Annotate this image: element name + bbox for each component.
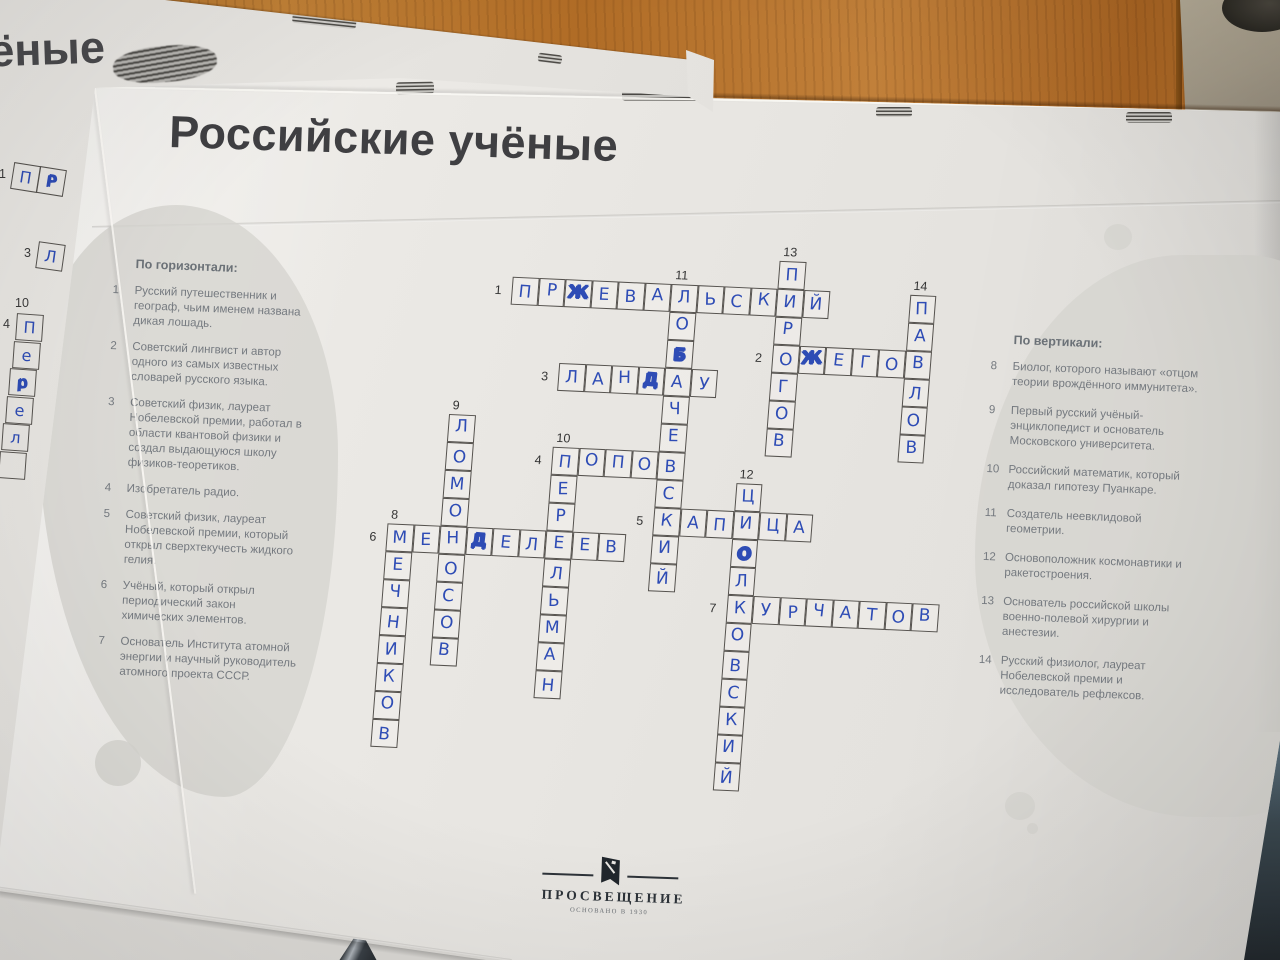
grid-cell-r9c13: И [732,511,761,540]
grid-cell-r2c19: А [906,323,935,352]
handwritten-letter: В [918,606,931,626]
across-clues-block: По горизонтали: 1Русский путешественник … [95,256,320,698]
grid-cell-r6c19: В [897,434,926,463]
grid-cell-r9c14: Ц [758,512,787,541]
page-title: Российские учёные [168,106,619,172]
clue-number: 13 [978,594,1004,640]
handwritten-letter: О [730,625,745,645]
grid-cell-r12c19: О [884,602,913,631]
grid-cell-r10c1: Е [412,525,441,554]
handwritten-letter: Ь [704,290,716,310]
handwritten-letter: Й [719,768,733,789]
grid-cell-r9c10: К [652,507,681,536]
grid-cell-r7c7: О [577,448,606,477]
back-grid-number: 10 [15,296,29,310]
grid-cell-r10c6: Е [544,531,573,560]
clue-text: Российский математик, который доказал ги… [1008,463,1205,501]
grid-cell-r4c10: А [663,368,692,397]
grid-cell-r4c8: Н [610,365,639,394]
grid-number-13: 13 [783,245,798,260]
handwritten-letter: Е [552,533,564,553]
handwritten-letter: К [659,511,673,532]
handwritten-letter: И [658,538,671,558]
handwritten-letter: М [449,474,465,495]
back-grid-cell: П [15,313,44,342]
handwritten-letter: Г [859,352,871,373]
grid-cell-r10c5: Л [518,529,547,558]
handwritten-letter: Р [787,603,798,623]
grid-cell-r1c13: К [749,288,778,317]
grid-cell-r3c19: В [903,351,932,380]
handwritten-letter: Р [781,319,794,340]
handwritten-letter: Ц [765,516,780,536]
grid-cell-r9c6: Р [546,503,575,532]
grid-cell-r6c10: Е [659,424,688,453]
grid-cell-r7c10: В [657,452,686,481]
grid-cell-r5c10: Ч [661,396,690,425]
handwritten-letter: П [557,452,572,473]
handwritten-letter: Е [420,530,431,550]
handwritten-letter: П [23,318,36,338]
handwritten-letter: Е [392,555,404,575]
grid-cell-r6c2: Л [447,414,476,443]
clue-item: 9Первый русский учёный-энциклопедист и о… [985,403,1237,458]
grid-cell-r11c6: Л [542,558,571,587]
handwritten-letter: Н [618,368,631,388]
publisher-name: ПРОСВЕЩЕНИЕ [541,887,677,908]
grid-cell-r10c3: Д [465,527,494,556]
grid-cell-r12c20: В [911,603,940,632]
clue-item: 11Создатель неевклидовой геометрии. [982,506,1233,546]
handwritten-letter: е [20,345,31,365]
grid-cell-r12c15: Р [778,597,807,626]
back-grid-number: 1 [0,167,6,181]
handwritten-letter: Е [832,350,845,371]
grid-cell-r8c10: С [654,479,683,508]
grid-cell-r3c18: О [877,349,906,378]
handwritten-letter: Н [540,675,555,696]
grid-cell-r9c2: О [440,498,469,527]
handwritten-letter: Е [667,426,679,446]
across-clue-list: 1Русский путешественник и географ, чьим … [95,283,319,687]
grid-cell-r1c9: А [643,283,672,312]
grid-cell-r13c6: М [538,614,567,643]
handwritten-letter: О [884,355,899,376]
handwritten-letter: О [674,314,689,334]
grid-cell-r1c8: В [616,282,645,311]
handwritten-letter: А [670,372,684,393]
clue-number: 10 [984,462,1009,493]
clue-item: 6Учёный, который открыл периодический за… [97,578,307,631]
handwritten-letter: л [10,428,22,448]
grid-cell-r14c2: В [430,637,459,666]
handwritten-letter: И [384,640,397,660]
clue-item: 13Основатель российской школы военно-пол… [978,594,1230,649]
down-clues-block: По вертикали: 8Биолог, которого называют… [975,332,1240,722]
handwritten-letter: О [447,501,462,522]
handwritten-letter: С [662,484,676,505]
clue-item: 5Советский физик, лауреат Нобелевской пр… [100,507,310,575]
grid-number-9: 9 [452,398,460,412]
grid-cell-r4c9: Д [637,367,666,396]
grid-number-14: 14 [913,279,928,294]
handwritten-letter: Й [655,569,669,589]
handwritten-letter: О [637,455,652,476]
grid-cell-r1c4: П [511,277,540,306]
clue-item: 1Русский путешественник и географ, чьим … [109,283,319,336]
grid-cell-r11c0: Е [383,551,412,580]
clue-item: 12Основоположник космонавтики и ракетост… [980,550,1231,590]
handwritten-letter: Ц [741,486,755,506]
grid-cell-r4c7: А [584,364,613,393]
handwritten-letter: Л [565,367,579,387]
grid-cell-r10c7: Е [571,532,600,561]
handwritten-letter: Е [579,535,591,555]
logo-rule-right [627,876,678,879]
grid-cell-r7c8: П [604,449,633,478]
decorative-dot [1104,224,1132,250]
clue-text: Советский физик, лауреат Нобелевской пре… [127,396,308,478]
grid-cell-r17c0: В [370,719,399,748]
clue-number: 9 [985,403,1011,449]
handwritten-letter: К [725,710,738,730]
open-book-icon [598,856,623,887]
grid-cell-r9c15: А [785,513,814,542]
clue-text: Создатель неевклидовой геометрии. [1006,507,1203,545]
toner-smudge [876,107,912,117]
clue-number: 12 [980,550,1005,581]
handwritten-letter: Ж [801,348,822,368]
grid-cell-r17c13: И [714,734,743,763]
handwritten-letter: У [760,601,771,621]
back-grid-cell: л [1,423,30,452]
grid-cell-r9c12: П [705,510,734,539]
grid-cell-r10c10: И [650,535,679,564]
handwritten-letter: О [443,559,457,579]
handwritten-letter: Е [598,285,610,305]
handwritten-letter: К [756,290,770,311]
grid-cell-r3c10: Б [665,340,694,369]
handwritten-letter: С [726,683,740,704]
handwritten-letter: К [382,666,395,686]
clue-number: 11 [982,506,1007,537]
grid-cell-r14c6: А [536,642,565,671]
handwritten-letter: О [774,404,789,425]
grid-cell-r12c13: К [725,595,754,624]
grid-cell-r13c2: О [432,610,461,639]
handwritten-letter: Л [908,384,923,405]
handwritten-letter: П [785,265,799,285]
grid-cell-r4c6: Л [557,363,586,392]
grid-cell-r8c6: Е [548,475,577,504]
clue-item: 14Русский физиолог, лауреат Нобелевской … [975,653,1227,708]
grid-cell-r1c7: Е [590,280,619,309]
clue-item: 10Российский математик, который доказал … [984,462,1235,502]
down-clue-list: 8Биолог, которого называют «отцом теории… [975,359,1238,708]
handwritten-letter: Л [525,535,540,556]
grid-cell-r7c6: П [551,447,580,476]
handwritten-letter: О [778,350,792,370]
grid-cell-r1c11: Ь [696,285,725,314]
grid-cell-r12c6: Ь [540,586,569,615]
grid-cell-r1c10: Л [669,284,698,313]
handwritten-letter: С [442,586,455,606]
grid-number-3: 3 [541,369,549,383]
back-grid-number: 3 [24,246,31,260]
grid-cell-r1c19: П [908,295,937,324]
handwritten-letter: А [792,518,805,538]
grid-cell-r3c15: Ж [797,346,826,375]
photo-of-crossword-worksheet: учёные 1ПР3Л104Перел Российские учёные П… [0,0,1280,960]
grid-cell-r3c17: Г [850,348,879,377]
clue-item: 7Основатель Института атомной энергии и … [95,634,305,687]
clue-text: Изобретатель радио. [126,482,304,504]
grid-cell-r10c0: М [385,523,414,552]
handwritten-letter: В [624,287,637,307]
grid-cell-r5c14: О [767,400,796,429]
grid-cell-r12c0: Ч [381,579,410,608]
grid-cell-r14c13: В [721,651,750,680]
handwritten-letter: Р [45,171,58,191]
handwritten-letter: Л [455,417,469,437]
decorative-dot [1027,823,1038,834]
publisher-logo: ПРОСВЕЩЕНИЕ ОСНОВАНО В 1930 [541,854,679,918]
grid-cell-r16c13: К [717,707,746,736]
back-grid-number: 4 [3,317,10,331]
handwritten-letter: Е [557,479,568,499]
handwritten-letter: Л [677,288,691,308]
grid-number-12: 12 [739,467,754,482]
handwritten-letter: С [729,291,743,312]
grid-cell-r1c12: С [722,286,751,315]
handwritten-letter: М [544,618,560,638]
handwritten-letter: В [905,438,918,458]
handwritten-letter: Ь [548,591,560,611]
handwritten-letter: О [439,613,454,634]
handwritten-letter: Л [43,246,58,266]
handwritten-letter: И [782,292,797,313]
handwritten-letter: О [906,411,920,431]
grid-cell-r12c14: У [752,596,781,625]
back-grid-cell: Л [35,241,65,271]
grid-cell-r1c15: Й [802,290,831,319]
handwritten-letter: Р [555,506,566,526]
clue-number: 8 [988,359,1013,390]
handwritten-letter: К [733,598,746,618]
grid-cell-r13c13: О [723,623,752,652]
across-heading: По горизонтали: [135,257,319,278]
grid-cell-r15c0: К [375,663,404,692]
handwritten-letter: И [739,513,753,534]
clue-text: Советский лингвист и автор одного из сам… [131,340,311,392]
clue-number: 7 [95,634,121,680]
handwritten-letter: У [698,374,710,395]
clue-item: 4Изобретатель радио. [102,481,310,504]
handwritten-letter: А [913,326,926,346]
grid-cell-r13c0: Н [379,607,408,636]
handwritten-letter: Ч [389,581,403,602]
handwritten-letter: Р [545,280,557,301]
clue-number: 3 [103,395,130,471]
grid-cell-r12c2: С [434,582,463,611]
grid-cell-r9c11: А [679,509,708,538]
grid-cell-r12c16: Ч [805,598,834,627]
handwritten-letter: П [915,299,929,319]
handwritten-letter: В [664,457,677,477]
handwritten-letter: А [544,645,557,665]
handwritten-letter: О [891,607,906,628]
grid-cell-r11c2: О [436,554,465,583]
grid-cell-r3c14: О [771,345,800,374]
clue-number: 5 [100,507,126,568]
grid-cell-r14c0: И [377,635,406,664]
grid-cell-r15c13: С [719,679,748,708]
grid-number-7: 7 [709,601,717,615]
handwritten-letter: Й [809,294,823,315]
clue-item: 8Биолог, которого называют «отцом теории… [988,359,1239,399]
back-grid-cell: е [5,396,34,425]
clue-item: 2Советский лингвист и автор одного из са… [107,339,317,392]
clue-text: Русский физиолог, лауреат Нобелевской пр… [999,654,1197,707]
grid-cell-r15c6: Н [533,670,562,699]
grid-cell-r10c13: О [730,539,759,568]
clue-text: Основоположник космонавтики и ракетостро… [1004,551,1201,589]
handwritten-letter: е [13,400,24,420]
grid-number-1: 1 [494,283,502,297]
handwritten-letter: П [712,515,727,536]
grid-cell-r4c19: Л [901,379,930,408]
grid-cell-r1c14: И [775,289,804,318]
handwritten-letter: р [17,373,28,393]
grid-number-5: 5 [636,514,644,528]
handwritten-letter: О [584,450,599,471]
grid-cell-r6c14: В [765,428,794,457]
grid-cell-r0c14: П [777,261,806,290]
handwritten-letter: Т [866,605,878,626]
handwritten-letter: В [437,640,451,661]
grid-cell-r10c2: Н [438,526,467,555]
handwritten-letter: Г [777,377,789,397]
handwritten-letter: М [392,528,408,548]
handwritten-letter: Б [672,345,687,366]
publisher-subtitle: ОСНОВАНО В 1930 [541,906,677,918]
grid-number-11: 11 [675,268,689,283]
grid-cell-r1c6: Ж [564,279,593,308]
grid-cell-r18c13: Й [712,762,741,791]
handwritten-letter: В [772,431,786,452]
decorative-dot [1005,792,1035,820]
handwritten-letter: Ж [567,282,589,303]
handwritten-letter: А [651,285,664,305]
grid-cell-r11c10: Й [648,563,677,592]
grid-number-6: 6 [369,530,377,544]
clue-number: 4 [102,481,127,497]
grid-cell-r12c17: А [831,600,860,629]
handwritten-letter: И [722,737,736,757]
grid-cell-r12c18: Т [858,601,887,630]
clue-number: 6 [97,578,123,624]
handwritten-letter: Н [386,612,401,633]
handwritten-letter: А [686,513,700,534]
handwritten-letter: О [452,447,467,467]
handwritten-letter: О [379,693,394,714]
handwritten-letter: Д [642,370,659,391]
handwritten-letter: Л [549,564,564,585]
grid-cell-r2c14: Р [773,317,802,346]
grid-cell-r10c8: В [597,533,626,562]
handwritten-letter: П [517,282,532,303]
grid-cell-r8c13: Ц [734,483,763,512]
grid-cell-r7c2: О [445,442,474,471]
handwritten-letter: В [728,656,742,677]
grid-cell-r4c14: Г [769,373,798,402]
back-grid-cell: р [8,368,37,397]
handwritten-letter: В [605,537,618,557]
toner-smudge [538,53,563,65]
worksheet: Российские учёные По горизонтали: 1Русск… [0,0,1280,960]
grid-number-2: 2 [755,351,763,365]
handwritten-letter: А [839,603,853,624]
grid-number-10: 10 [556,431,571,446]
clue-text: Биолог, которого называют «отцом теории … [1012,360,1209,398]
back-grid-cell: е [12,341,41,370]
handwritten-letter: О [735,544,752,565]
clue-text: Русский путешественник и географ, чьим и… [133,284,313,336]
back-grid-cell [0,451,26,480]
handwritten-letter: Л [735,571,748,591]
decorative-dot [95,740,141,786]
handwritten-letter: Е [499,532,512,553]
grid-number-4: 4 [534,453,542,467]
back-grid-cell: Р [36,166,67,197]
grid-cell-r2c10: О [667,312,696,341]
grid-cell-r3c16: Е [824,347,853,376]
grid-cell-r16c0: О [372,691,401,720]
handwritten-letter: Д [470,530,487,551]
grid-number-8: 8 [391,507,399,521]
paper-crease [92,200,1280,229]
handwritten-letter: П [611,452,626,473]
handwritten-letter: Н [446,528,459,548]
clue-number: 14 [975,653,1001,699]
grid-cell-r4c11: У [689,369,718,398]
clue-text: Первый русский учёный-энциклопедист и ос… [1009,404,1207,457]
grid-cell-r10c4: Е [491,528,520,557]
grid-cell-r11c13: Л [727,567,756,596]
handwritten-letter: А [592,370,604,390]
logo-rule-left [542,873,593,876]
handwritten-letter: Ч [669,399,681,419]
handwritten-letter: В [911,353,924,374]
handwritten-letter: П [18,167,33,188]
grid-cell-r1c5: Р [537,278,566,307]
clue-text: Учёный, который открыл периодический зак… [121,579,301,631]
clue-text: Основатель Института атомной энергии и н… [119,635,299,687]
toner-smudge [1126,112,1172,123]
grid-cell-r7c9: О [630,450,659,479]
clue-text: Основатель российской школы военно-полев… [1002,595,1200,648]
handwritten-letter: Ч [812,601,826,622]
grid-cell-r8c2: М [443,470,472,499]
handwritten-letter: В [378,724,392,745]
grid-cell-r5c19: О [899,406,928,435]
